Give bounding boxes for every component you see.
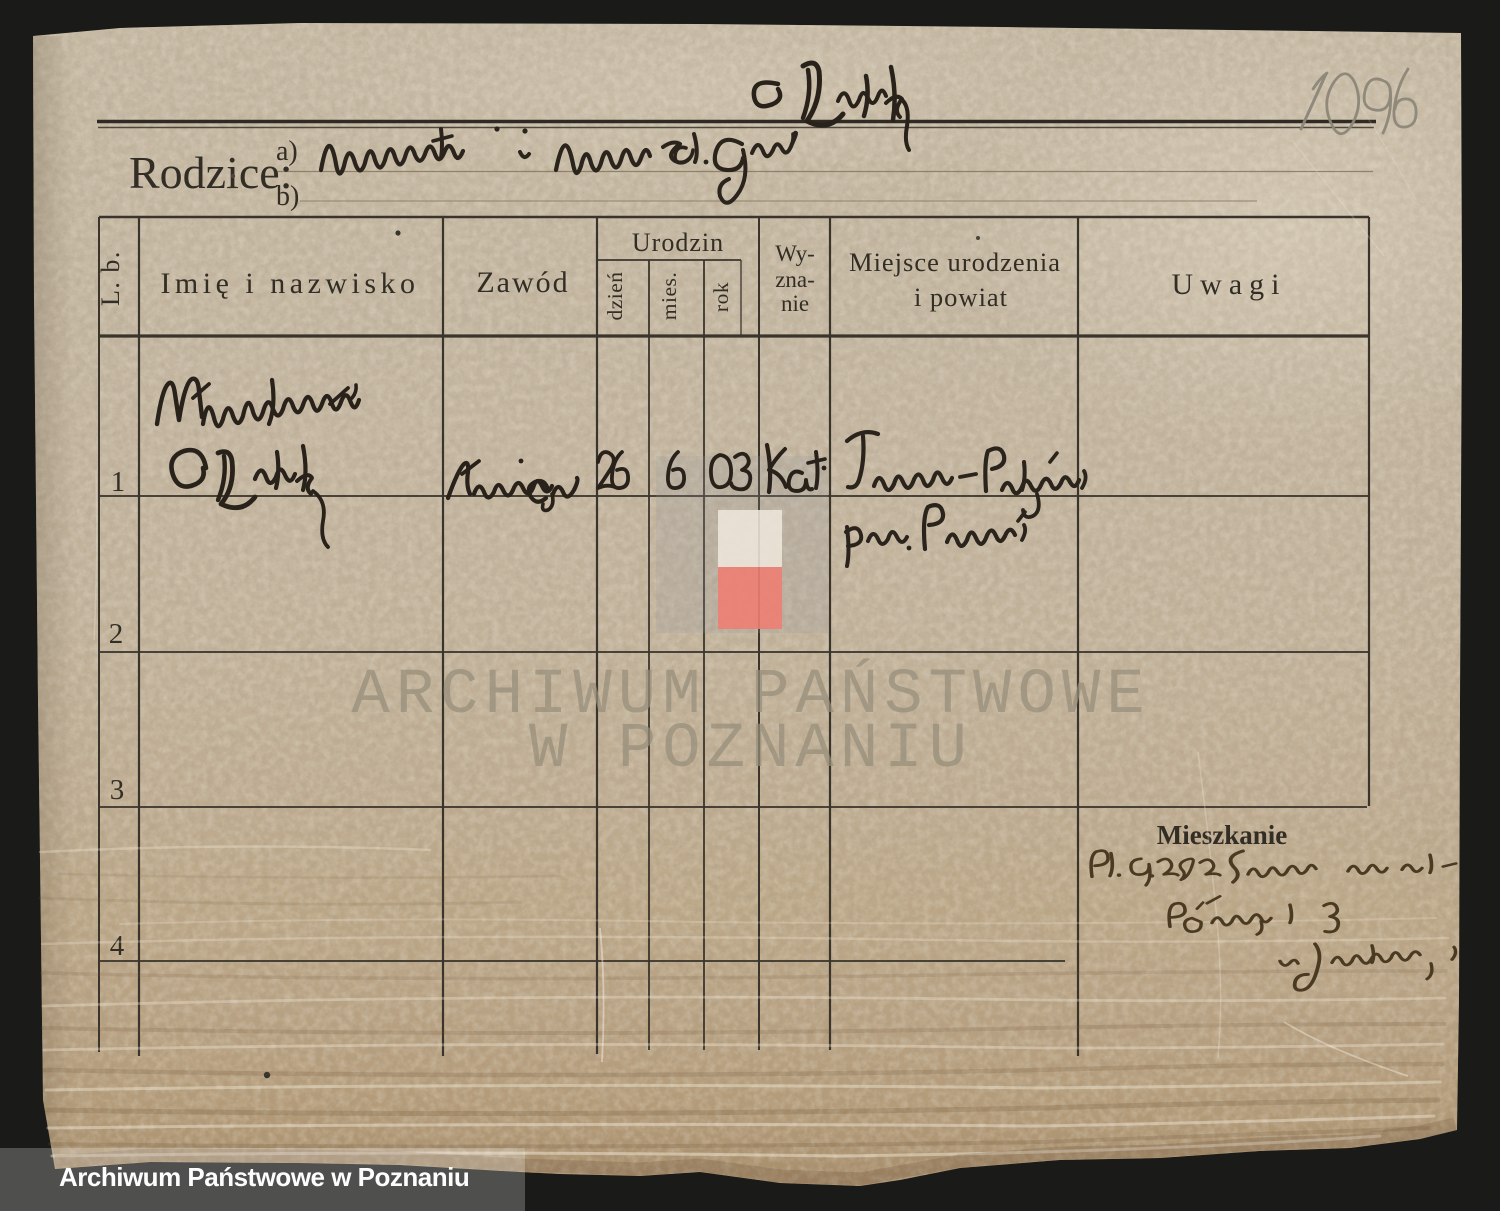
svg-text:1: 1: [111, 466, 126, 498]
svg-text:Mieszkanie: Mieszkanie: [1157, 820, 1287, 850]
svg-text:Imię i nazwisko: Imię i nazwisko: [160, 267, 419, 300]
svg-text:2: 2: [109, 618, 124, 650]
svg-text:Wy-: Wy-: [775, 241, 815, 266]
svg-text:rok: rok: [709, 282, 733, 312]
svg-text:i powiat: i powiat: [914, 282, 1008, 312]
svg-text:Urodzin: Urodzin: [632, 228, 724, 257]
svg-text:Uwagi: Uwagi: [1172, 268, 1287, 301]
svg-text:3: 3: [110, 774, 125, 806]
svg-text:nie: nie: [781, 291, 809, 316]
svg-text:zna-: zna-: [775, 267, 815, 292]
svg-text:Archiwum Państwowe w Poznaniu: Archiwum Państwowe w Poznaniu: [59, 1162, 469, 1192]
svg-text:Zawód: Zawód: [476, 266, 569, 299]
svg-text:Rodzice:: Rodzice:: [129, 147, 293, 198]
svg-text:mies.: mies.: [657, 272, 681, 320]
svg-text:W POZNANIU: W POZNANIU: [529, 714, 973, 786]
svg-text:a): a): [276, 136, 298, 167]
svg-text:Miejsce urodzenia: Miejsce urodzenia: [849, 247, 1061, 277]
svg-text:L. b.: L. b.: [96, 250, 125, 306]
svg-text:4: 4: [110, 930, 125, 962]
svg-text:dzień: dzień: [603, 271, 627, 320]
svg-text:b): b): [276, 181, 299, 212]
